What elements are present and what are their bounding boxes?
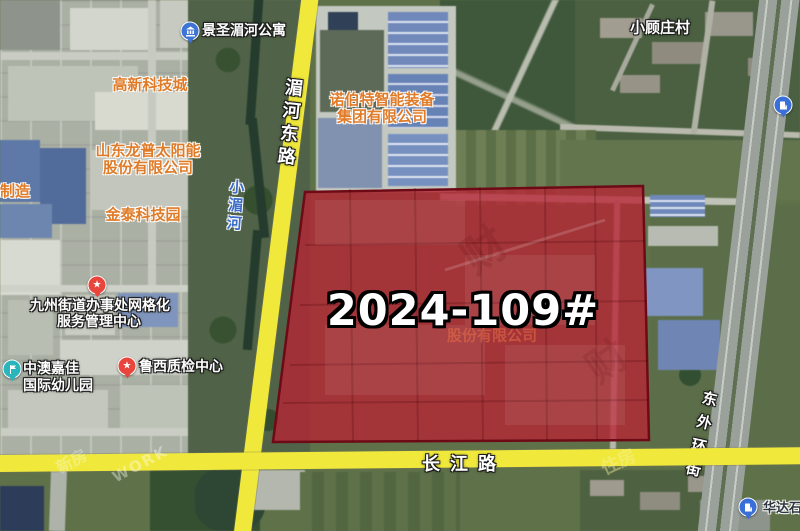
bank-glyph-icon bbox=[185, 26, 195, 36]
poi-label-luxi[interactable]: 鲁西质检中心 bbox=[139, 360, 223, 374]
poi-label-longpu-line2[interactable]: 股份有限公司 bbox=[103, 161, 193, 176]
poi-label-zhongao-line1[interactable]: 中澳嘉佳 bbox=[23, 362, 79, 376]
terrain-blue-shed bbox=[388, 12, 448, 68]
poi-label-jintai[interactable]: 金泰科技园 bbox=[105, 208, 180, 223]
poi-label-huada-gas[interactable]: 华达石 bbox=[763, 502, 800, 515]
gas-pump-glyph-icon bbox=[778, 100, 788, 110]
terrain-house bbox=[620, 75, 660, 93]
poi-label-jingsheng[interactable]: 景圣湄河公寓 bbox=[202, 24, 286, 38]
terrain-blue-shed bbox=[0, 204, 52, 238]
road-label-changjiang: 长江路 bbox=[422, 456, 506, 474]
gas-pump-glyph-icon bbox=[743, 502, 753, 512]
poi-label-jiuzhou-line1[interactable]: 九州街道办事处网格化 bbox=[30, 299, 170, 313]
terrain-road-v bbox=[49, 468, 67, 531]
poi-label-jiuzhou-line2[interactable]: 服务管理中心 bbox=[57, 315, 141, 329]
poi-label-zhongao-line2[interactable]: 国际幼儿园 bbox=[23, 379, 93, 393]
poi-label-longpu-line1[interactable]: 山东龙普太阳能 bbox=[95, 144, 200, 159]
terrain-blue-shed bbox=[658, 320, 720, 370]
poi-label-xiaoguzhuang[interactable]: 小顾庄村 bbox=[630, 21, 690, 36]
terrain-building bbox=[0, 0, 60, 50]
poi-label-nuobote-line1[interactable]: 诺伯特智能装备 bbox=[329, 93, 434, 108]
poi-label-nuobote-line2[interactable]: 集团有限公司 bbox=[337, 110, 427, 125]
star-glyph-icon: ★ bbox=[123, 361, 132, 371]
terrain-building bbox=[70, 8, 155, 50]
quality-center-star-pin-icon[interactable]: ★ bbox=[118, 357, 137, 376]
terrain-house bbox=[652, 42, 704, 64]
poi-label-gaoxin[interactable]: 高新科技城 bbox=[112, 78, 187, 93]
building-pin-icon[interactable] bbox=[181, 22, 200, 41]
terrain-building bbox=[0, 486, 44, 531]
satellite-map-view[interactable]: 东外环街 股份有 bbox=[0, 0, 800, 531]
kindergarten-pin-icon[interactable] bbox=[3, 360, 22, 379]
government-star-pin-icon[interactable]: ★ bbox=[88, 276, 107, 295]
terrain-building bbox=[250, 470, 305, 510]
star-glyph-icon: ★ bbox=[93, 280, 102, 290]
parcel-code-label: 2024-109# bbox=[327, 286, 599, 336]
gas-station-pin-icon[interactable] bbox=[739, 498, 758, 517]
river-label-xiaomei: 小湄河 bbox=[225, 179, 244, 234]
terrain-house bbox=[640, 492, 680, 510]
gas-station-pin-icon[interactable] bbox=[774, 96, 793, 115]
flag-glyph-icon bbox=[7, 364, 17, 374]
terrain-house bbox=[590, 480, 624, 496]
terrain-field bbox=[300, 472, 460, 531]
poi-label-zhizao-partial[interactable]: 制造 bbox=[0, 184, 30, 199]
